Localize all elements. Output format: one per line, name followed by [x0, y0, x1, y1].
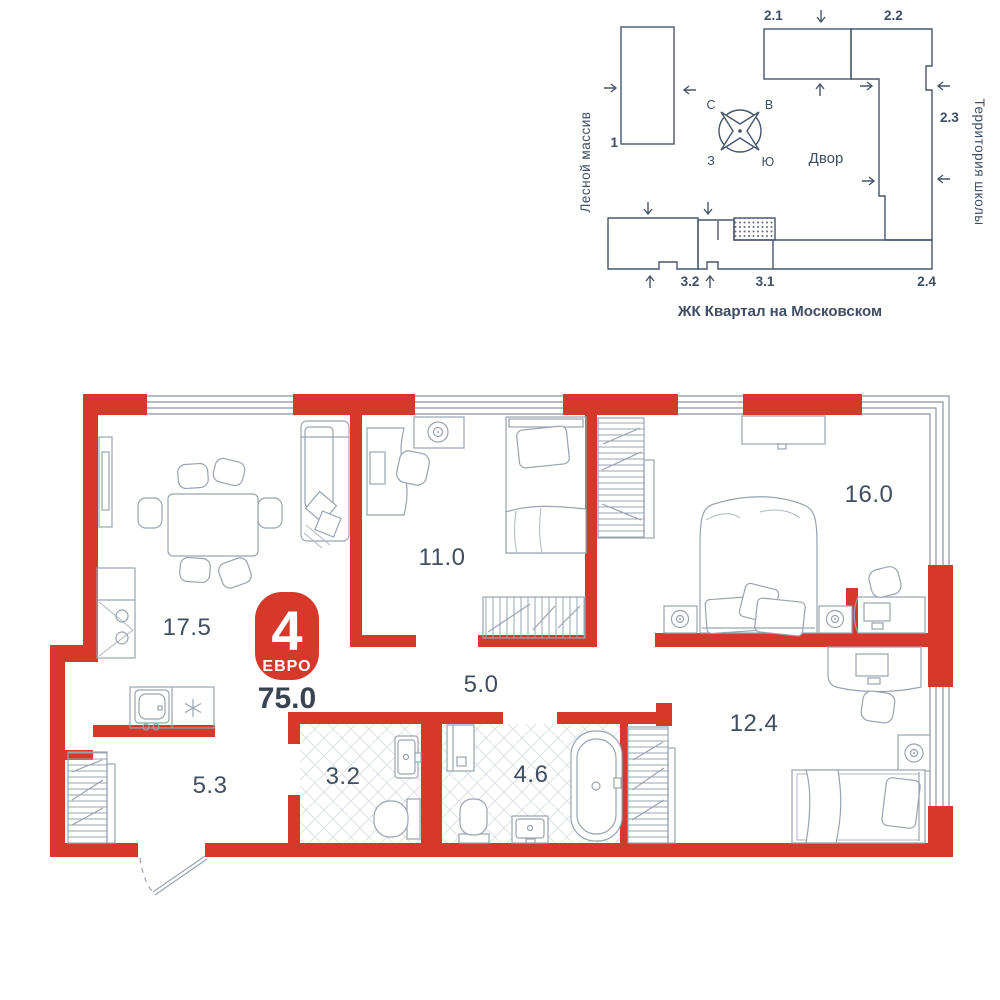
total-area-label: 75.0 — [258, 682, 316, 715]
room-label-corridor: 5.0 — [464, 671, 499, 698]
room-label-bedroom-2: 16.0 — [845, 481, 894, 508]
badge-layout-type: ЕВРО — [262, 658, 311, 675]
room-label-bedroom-3: 12.4 — [730, 710, 779, 737]
compass-icon: С В З Ю — [706, 98, 774, 169]
apartment-type-badge: 4 ЕВРО — [255, 592, 319, 680]
dresser-corridor — [483, 597, 585, 638]
floorplan-page: С В З Ю 1 2.1 2.2 2.3 2.4 3.1 3.2 Двор — [0, 0, 1000, 1000]
complex-name-label: ЖК Квартал на Московском — [677, 303, 882, 320]
wardrobe-bedroom-3 — [628, 727, 675, 843]
dining-table — [138, 457, 282, 591]
right-area-label: Территория школы — [972, 99, 987, 226]
nightstand-left — [664, 606, 697, 633]
wc-sink — [395, 736, 421, 778]
ceiling-light-icon — [414, 417, 464, 448]
site-building-2-1 — [764, 29, 851, 79]
site-building-1 — [621, 27, 674, 144]
compass-south-label: Ю — [762, 155, 775, 169]
bathtub — [571, 731, 622, 841]
bathroom-sink — [512, 816, 548, 843]
site-building-label-3-2: 3.2 — [681, 274, 700, 289]
site-plan: С В З Ю 1 2.1 2.2 2.3 2.4 3.1 3.2 Двор — [578, 8, 987, 320]
room-label-hallway: 5.3 — [193, 772, 228, 799]
bed-single-1 — [506, 417, 586, 553]
bathroom-toilet — [459, 799, 489, 843]
badge-room-count: 4 — [271, 599, 302, 662]
site-building-label-1: 1 — [610, 135, 618, 150]
left-area-label: Лесной массив — [578, 112, 593, 213]
floor-plan: 17.5 11.0 16.0 5.0 12.4 5.3 3.2 4.6 4 ЕВ… — [50, 394, 953, 895]
site-building-3-2 — [608, 218, 698, 269]
room-label-kitchen-living: 17.5 — [163, 614, 212, 641]
compass-north-label: С — [706, 98, 715, 112]
site-building-3-1-2-4 — [698, 220, 932, 269]
kitchen-counter — [97, 568, 214, 730]
site-building-label-2-3: 2.3 — [940, 110, 959, 125]
site-building-label-3-1: 3.1 — [756, 274, 775, 289]
nightstand-bedroom-3 — [898, 735, 930, 771]
kitchen-sink — [135, 690, 169, 730]
tv-unit — [99, 437, 112, 527]
room-label-bathroom: 4.6 — [514, 761, 549, 788]
room-label-wc: 3.2 — [326, 763, 361, 790]
bed-double — [700, 497, 817, 637]
floorplan-canvas: С В З Ю 1 2.1 2.2 2.3 2.4 3.1 3.2 Двор — [0, 0, 1000, 1000]
compass-west-label: З — [707, 154, 715, 168]
desk-bedroom-1 — [367, 428, 431, 515]
site-highlighted-building — [734, 218, 775, 240]
site-building-label-2-1: 2.1 — [764, 8, 783, 23]
site-building-2-2-2-3 — [851, 29, 932, 240]
room-label-bedroom-1: 11.0 — [419, 544, 466, 571]
stove-icon — [185, 699, 201, 717]
desk-bedroom-2 — [854, 565, 925, 633]
bathroom-cabinet — [447, 725, 474, 771]
entrance-door — [140, 856, 207, 895]
wardrobe-hallway — [68, 752, 115, 843]
bed-single-2 — [792, 770, 925, 843]
dresser-bedroom-2 — [742, 416, 825, 449]
compass-east-label: В — [765, 98, 773, 112]
desk-bedroom-3 — [828, 647, 921, 724]
nightstand-right — [819, 606, 852, 633]
entrance-arrows — [604, 10, 950, 288]
sofa — [301, 421, 349, 548]
wc-toilet — [374, 799, 420, 839]
courtyard-label: Двор — [809, 150, 844, 167]
wardrobe-bedroom-2 — [598, 418, 654, 538]
site-building-label-2-2: 2.2 — [884, 8, 903, 23]
site-building-label-2-4: 2.4 — [917, 274, 936, 289]
